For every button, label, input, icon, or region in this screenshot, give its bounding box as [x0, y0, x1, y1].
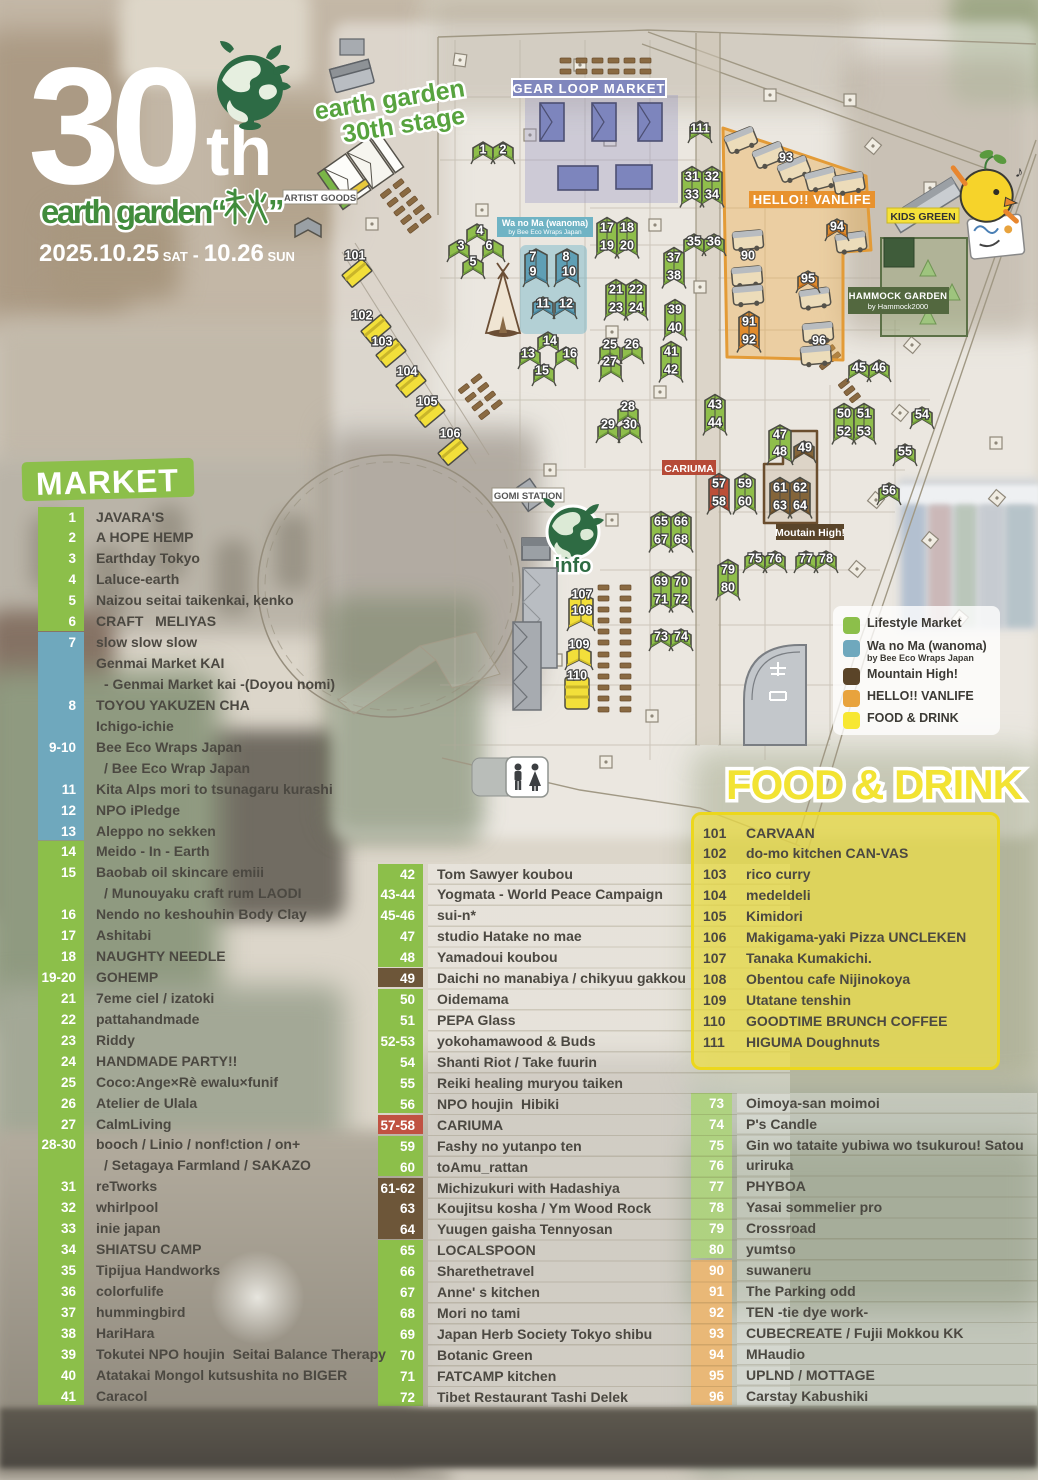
svg-text:48: 48	[773, 445, 787, 459]
svg-text:18: 18	[620, 221, 634, 235]
svg-text:25: 25	[603, 338, 617, 352]
svg-text:56: 56	[882, 484, 896, 498]
svg-text:51: 51	[857, 407, 871, 421]
svg-text:102: 102	[352, 309, 373, 323]
svg-text:108: 108	[572, 604, 593, 618]
svg-text:36: 36	[707, 235, 721, 249]
svg-text:72: 72	[674, 593, 688, 607]
svg-text:31: 31	[685, 170, 699, 184]
svg-text:70: 70	[674, 575, 688, 589]
svg-text:45: 45	[852, 361, 866, 375]
svg-text:10: 10	[562, 265, 576, 279]
svg-text:26: 26	[625, 338, 639, 352]
svg-text:58: 58	[712, 495, 726, 509]
svg-text:110: 110	[567, 669, 587, 683]
svg-text:79: 79	[721, 563, 735, 577]
svg-text:90: 90	[741, 249, 755, 263]
svg-text:41: 41	[664, 345, 678, 359]
svg-text:91: 91	[742, 315, 756, 329]
svg-text:44: 44	[708, 416, 722, 430]
svg-text:24: 24	[629, 301, 643, 315]
svg-text:20: 20	[620, 239, 634, 253]
svg-text:5: 5	[470, 255, 477, 269]
svg-text:73: 73	[654, 630, 668, 644]
svg-text:77: 77	[799, 552, 813, 566]
svg-text:17: 17	[600, 221, 614, 235]
svg-text:6: 6	[486, 239, 493, 253]
svg-text:66: 66	[674, 515, 688, 529]
svg-text:14: 14	[543, 334, 557, 348]
svg-text:46: 46	[872, 361, 886, 375]
svg-text:59: 59	[738, 477, 752, 491]
svg-text:earth garden“: earth garden“	[41, 193, 226, 230]
svg-text:40: 40	[668, 321, 682, 335]
svg-text:96: 96	[812, 334, 826, 348]
svg-text:30: 30	[623, 418, 637, 432]
svg-text:52: 52	[837, 425, 851, 439]
svg-text:2: 2	[500, 143, 507, 157]
svg-text:37: 37	[667, 251, 681, 265]
svg-text:64: 64	[793, 499, 807, 513]
svg-text:16: 16	[563, 347, 577, 361]
svg-text:FOOD & DRINK: FOOD & DRINK	[726, 761, 1023, 808]
svg-text:21: 21	[609, 283, 623, 297]
svg-text:”: ”	[268, 193, 285, 230]
svg-text:103: 103	[372, 335, 393, 349]
svg-text:34: 34	[705, 188, 719, 202]
svg-text:67: 67	[654, 533, 668, 547]
svg-text:3: 3	[458, 239, 465, 253]
svg-text:22: 22	[629, 283, 643, 297]
svg-text:65: 65	[654, 515, 668, 529]
svg-text:101: 101	[345, 249, 366, 263]
svg-text:105: 105	[417, 395, 438, 409]
svg-text:32: 32	[705, 170, 719, 184]
svg-text:80: 80	[721, 581, 735, 595]
svg-text:69: 69	[654, 575, 668, 589]
svg-text:33: 33	[685, 188, 699, 202]
svg-text:74: 74	[674, 630, 688, 644]
svg-text:107: 107	[572, 588, 593, 602]
svg-text:57: 57	[712, 477, 726, 491]
svg-text:93: 93	[779, 151, 793, 165]
svg-text:55: 55	[898, 445, 912, 459]
svg-text:63: 63	[773, 499, 787, 513]
svg-text:13: 13	[521, 347, 535, 361]
svg-text:43: 43	[708, 398, 722, 412]
svg-text:38: 38	[667, 269, 681, 283]
svg-text:111: 111	[690, 122, 710, 136]
svg-text:7: 7	[530, 250, 537, 264]
svg-text:11: 11	[536, 297, 549, 311]
svg-text:60: 60	[738, 495, 752, 509]
svg-text:23: 23	[609, 301, 623, 315]
svg-text:92: 92	[742, 333, 756, 347]
svg-text:71: 71	[654, 593, 668, 607]
svg-text:94: 94	[830, 220, 844, 234]
svg-text:76: 76	[768, 552, 782, 566]
svg-text:50: 50	[837, 407, 851, 421]
svg-text:104: 104	[397, 365, 418, 379]
svg-text:53: 53	[857, 425, 871, 439]
svg-text:35: 35	[687, 235, 701, 249]
svg-text:54: 54	[915, 408, 929, 422]
svg-text:8: 8	[563, 250, 570, 264]
svg-text:78: 78	[819, 552, 833, 566]
svg-text:75: 75	[748, 552, 762, 566]
svg-text:28: 28	[621, 400, 635, 414]
svg-text:12: 12	[559, 297, 573, 311]
svg-text:68: 68	[674, 533, 688, 547]
svg-text:61: 61	[773, 481, 787, 495]
svg-text:19: 19	[600, 239, 614, 253]
svg-text:27: 27	[603, 355, 617, 369]
svg-text:42: 42	[664, 363, 678, 377]
svg-text:49: 49	[798, 441, 812, 455]
svg-text:109: 109	[569, 638, 590, 652]
svg-text:39: 39	[668, 303, 682, 317]
svg-text:9: 9	[530, 265, 537, 279]
svg-text:95: 95	[801, 272, 815, 286]
svg-text:62: 62	[793, 481, 807, 495]
svg-text:106: 106	[440, 427, 461, 441]
svg-text:4: 4	[477, 224, 484, 238]
svg-text:29: 29	[601, 418, 615, 432]
svg-text:15: 15	[535, 364, 549, 378]
svg-text:47: 47	[773, 428, 787, 442]
